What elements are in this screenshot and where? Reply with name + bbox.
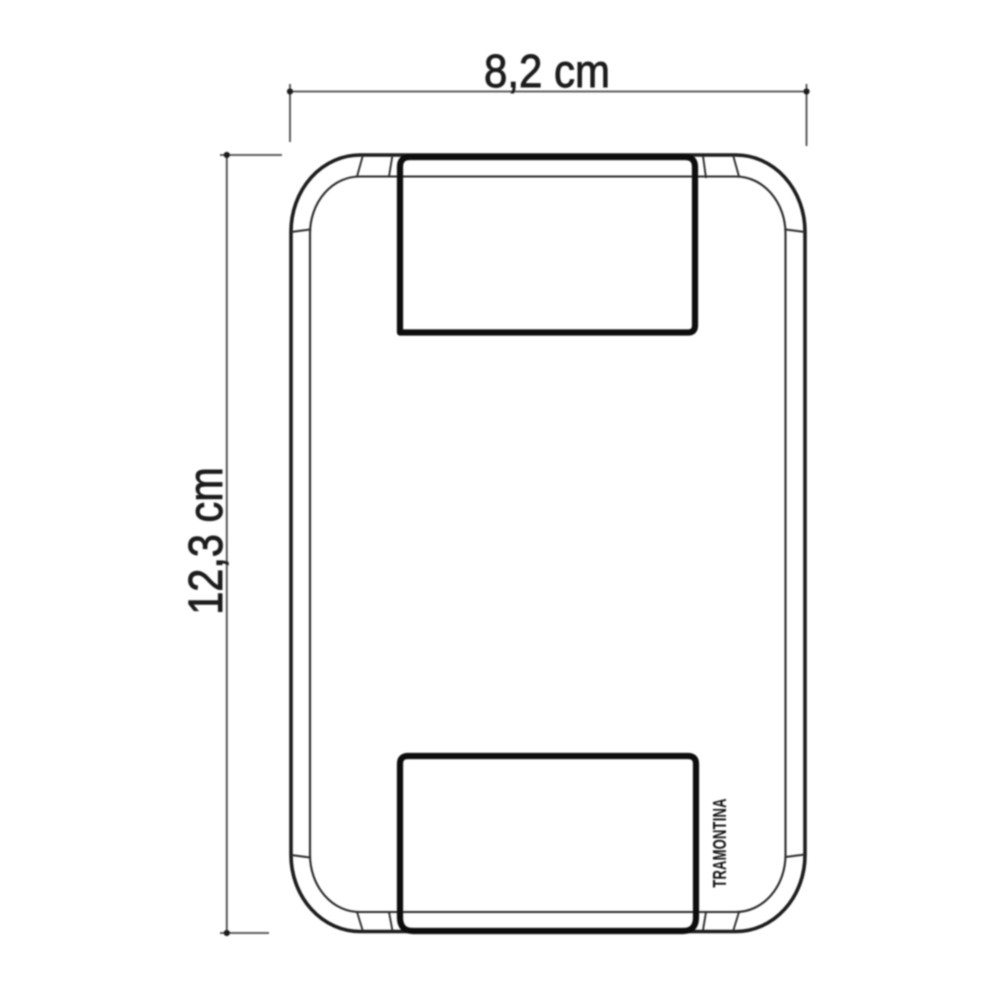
svg-text:8,2 cm: 8,2 cm [484, 46, 610, 97]
svg-text:TRAMONTINA: TRAMONTINA [710, 798, 731, 887]
svg-text:12,3 cm: 12,3 cm [178, 467, 233, 615]
